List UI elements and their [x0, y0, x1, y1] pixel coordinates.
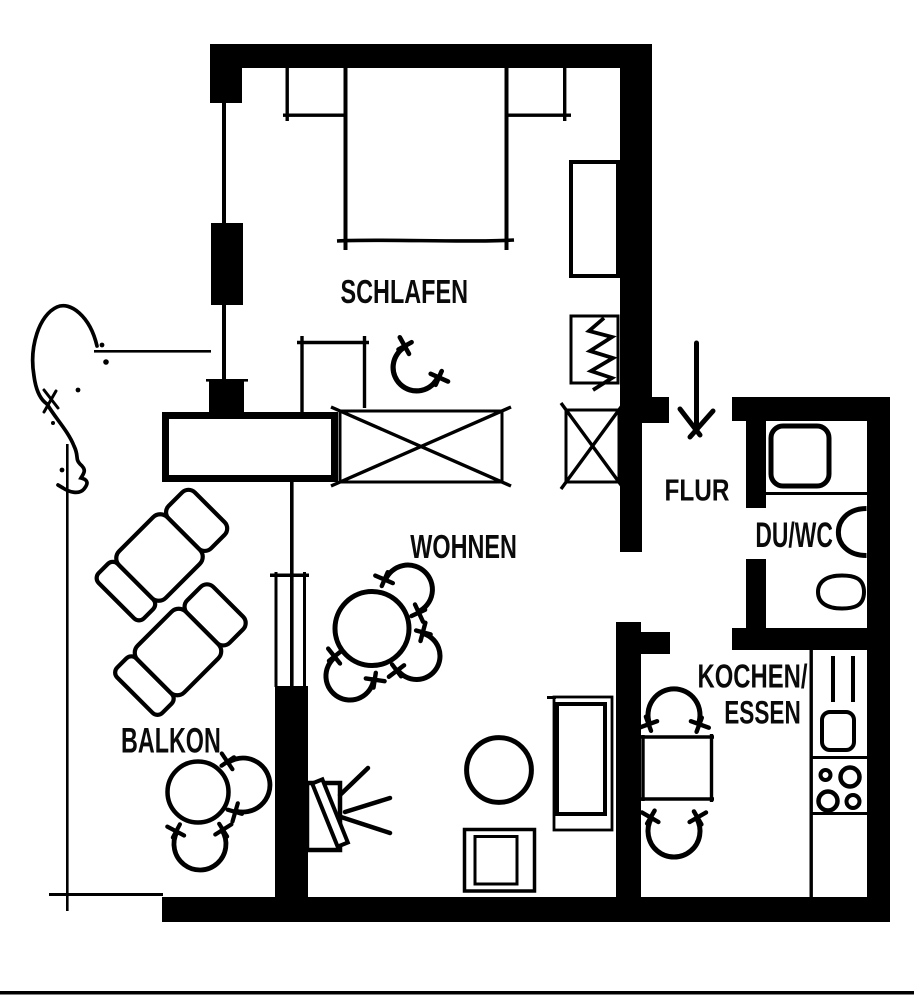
svg-text:ESSEN: ESSEN: [724, 694, 801, 730]
svg-text:DU/WC: DU/WC: [755, 516, 833, 555]
svg-text:WOHNEN: WOHNEN: [410, 529, 517, 566]
svg-text:KOCHEN/: KOCHEN/: [698, 658, 808, 695]
svg-text:SCHLAFEN: SCHLAFEN: [341, 274, 469, 311]
svg-text:BALKON: BALKON: [121, 720, 221, 760]
svg-text:FLUR: FLUR: [665, 473, 730, 507]
